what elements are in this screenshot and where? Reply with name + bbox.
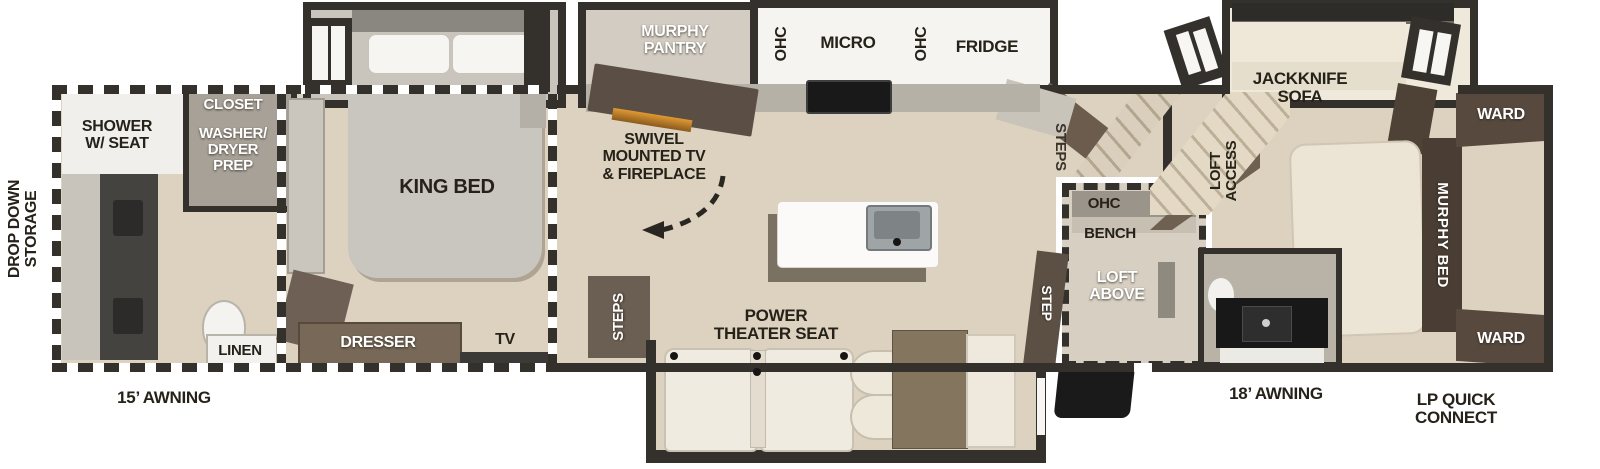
floorplan-canvas: DROP DOWN STORAGE 15’ AWNING 18’ AWNING …	[0, 0, 1600, 469]
linen-label: LINEN	[206, 338, 274, 364]
window-pane	[331, 26, 345, 80]
top-wall-rear	[1458, 85, 1553, 94]
murphy-pantry-label: MURPHY PANTRY	[608, 18, 742, 62]
top-wall-mid	[1032, 85, 1230, 94]
bottom-wall	[557, 363, 1553, 372]
awning-rear-label: 18’ AWNING	[1176, 383, 1376, 405]
jackknife-sofa-label: JACKKNIFE SOFA	[1230, 66, 1370, 110]
cooktop	[806, 80, 892, 114]
loft-access-label: LOFT ACCESS	[1202, 121, 1246, 221]
king-bed-label: KING BED	[377, 176, 517, 200]
rear-window-right	[1401, 16, 1461, 86]
entry-door-gap	[1134, 363, 1152, 372]
ohc-right-label: OHC	[912, 17, 932, 71]
power-theater-seat-label: POWER THEATER SEAT	[696, 304, 856, 346]
bedroom-left-cabinet	[287, 98, 325, 274]
cupholder	[840, 352, 848, 360]
cupholder	[753, 352, 761, 360]
mid-ohc-label: OHC	[1074, 194, 1134, 214]
washer-dryer-label: WASHER/ DRYER PREP	[188, 117, 278, 183]
faucet	[893, 238, 901, 246]
dresser-label: DRESSER	[300, 332, 456, 354]
bench-label: BENCH	[1070, 224, 1150, 244]
rear-bath-cabinet	[1220, 348, 1324, 364]
rear-bath-faucet	[1262, 319, 1270, 327]
ohc-left-label: OHC	[772, 17, 792, 71]
jackknife-sofa-back	[1232, 22, 1406, 64]
cupholder	[753, 368, 761, 376]
swivel-tv-label: SWIVEL MOUNTED TV & FIREPLACE	[584, 126, 724, 188]
micro-label: MICRO	[808, 32, 888, 54]
cupholder	[670, 352, 678, 360]
dinette-table	[892, 330, 968, 449]
closet-label: CLOSET	[193, 95, 273, 115]
pillow-left	[368, 34, 450, 74]
bedroom-right-dashed-wall	[548, 94, 557, 363]
window-pane	[312, 26, 328, 80]
vanity-sink-top	[113, 200, 143, 236]
front-bottom-dashed-wall	[52, 363, 560, 372]
loft-above-label: LOFT ABOVE	[1067, 264, 1167, 308]
nightstand	[520, 94, 546, 128]
tv-label: TV	[480, 330, 530, 350]
drop-down-storage-label: DROP DOWN STORAGE	[0, 139, 46, 319]
fridge-label: FRIDGE	[947, 36, 1027, 58]
shower-label: SHOWER W/ SEAT	[67, 112, 167, 158]
murphy-bed-label: MURPHY BED	[1431, 155, 1453, 315]
slideout-window-pane	[1037, 378, 1045, 435]
front-left-dashed-wall	[52, 85, 61, 372]
rear-window-left	[1164, 16, 1229, 90]
dinette-bench	[966, 334, 1016, 448]
top-wall-kitchen-joint	[557, 85, 587, 94]
dinette-chair-top	[850, 350, 898, 396]
bath-left-cabinet	[62, 174, 102, 360]
front-top-dashed-wall	[52, 85, 305, 94]
ward-bottom-label: WARD	[1456, 328, 1546, 350]
bottom-slideout-left-wall	[646, 340, 656, 463]
pillow-right	[452, 34, 530, 74]
ward-top-label: WARD	[1456, 104, 1546, 126]
bedroom-top-dashed-wall	[305, 85, 548, 94]
lp-quick-connect-label: LP QUICK CONNECT	[1356, 387, 1556, 431]
entry-step	[1054, 372, 1135, 418]
front-steps-label: STEPS	[609, 282, 629, 352]
slideout-corner	[524, 2, 550, 92]
island-sink-basin	[874, 211, 920, 239]
bedroom-left-dashed-wall	[277, 94, 286, 363]
step-entry-label: STEP	[1036, 273, 1058, 333]
rear-steps-label: STEPS	[1048, 112, 1072, 182]
dinette-chair-bottom	[850, 394, 898, 440]
awning-front-label: 15’ AWNING	[64, 387, 264, 409]
headboard	[352, 10, 542, 32]
vanity-sink-bottom	[113, 298, 143, 334]
